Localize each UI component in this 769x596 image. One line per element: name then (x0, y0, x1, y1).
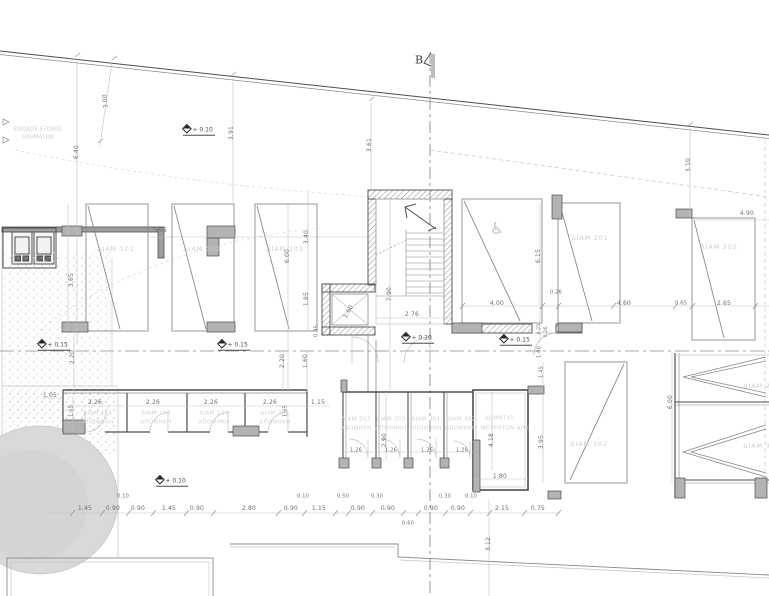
dimension-label: 0.50 (337, 495, 349, 500)
dimension-label: 2.26 (146, 400, 160, 406)
dimension-label: 6.40 (74, 145, 80, 159)
storage-room-label: ΑΠΟΘΗΚΗ (198, 420, 229, 426)
storage-room-label: ΑΠΟΘΗΚΗ (82, 420, 113, 426)
wheelchair-icon: ♿ (490, 221, 504, 237)
storage-room-label: ΑΠΟΘΗΚΗ (259, 420, 290, 426)
section-marker-flag (424, 53, 435, 78)
storage-room-label: ΜΕΤΡΗΤΩΝ ΑΗΚ (481, 426, 530, 432)
storage-room-label: ΔΙΑΜ 301 (411, 417, 440, 423)
dimension-label: 2.20 (70, 350, 76, 364)
dimension-label: 4.90 (740, 211, 754, 217)
storage-room-label: ΔΙΑΜ 102 (141, 411, 170, 417)
dimension-label: 3.61 (367, 138, 373, 152)
storage-room-label: ΑΠΟΘΗΚΗ (410, 426, 441, 432)
dimension-label: 0.90 (284, 506, 298, 512)
level-marker: + 0.15 (38, 340, 70, 351)
storage-room-label: ΑΠΟΘΗΚΗ (375, 426, 406, 432)
dimension-label: 0.30 (439, 495, 451, 500)
dimension-label: 1.45 (78, 506, 92, 512)
dimension-label: 0.90 (451, 506, 465, 512)
dimension-label: 2.65 (717, 301, 731, 307)
entrance-exit-note: ΕΙΣΟΔΟΣ-ΕΞΟΔΟΣ (13, 128, 62, 133)
storage-room-label: ΔΩΜΑΤΙΟ (485, 416, 514, 422)
dimension-label: 0.90 (381, 506, 395, 512)
storage-room-label: ΔΙΑΜ 103 (199, 411, 228, 417)
dimension-label: 0.90 (190, 506, 204, 512)
dimension-label: 1.26 (350, 449, 362, 454)
stair-direction-arrow (405, 204, 436, 231)
parking-space-label: ΔΙΑΜ 2 (743, 383, 769, 390)
dimension-label: 1.05 (43, 393, 57, 399)
dimension-label: 0.26 (545, 327, 550, 338)
dimension-label: 1.85 (304, 292, 310, 306)
storage-room-label: ΔΙΑΜ 201 (260, 411, 289, 417)
parking-space-label: ΔΙΑΜ 103 (266, 246, 303, 253)
dimension-label: 0.60 (402, 522, 414, 527)
dimension-label: 2.80 (242, 506, 256, 512)
entrance-arrow-icons (3, 119, 9, 143)
storage-room-label: ΑΠΟΘΗΚΗ (445, 426, 476, 432)
dimension-label: 3.95 (539, 435, 545, 449)
dimension-label: 2.20 (280, 354, 286, 368)
parking-space-label: ΔΙΑΜ 3 (743, 443, 769, 450)
dimension-label: 0.90 (131, 506, 145, 512)
dimension-label: 1.26 (385, 449, 397, 454)
parking-space-label: ΔΙΑΜ 302 (570, 441, 607, 448)
dimension-lines (40, 53, 769, 596)
dimension-label: 0.30 (371, 495, 383, 500)
dimension-label: 2.90 (382, 433, 388, 447)
parking-space-label: ΔΙΑΜ 102 (183, 246, 220, 253)
level-marker: + 0.15 (218, 340, 250, 351)
dimension-label: 0.10 (297, 495, 309, 500)
dimension-label: 0.75 (531, 506, 545, 512)
level-marker: + 0.20 (402, 333, 434, 344)
right-parking-bays (675, 353, 769, 498)
dimension-label: 1.60 (303, 354, 309, 368)
dimension-label: 4.18 (489, 433, 495, 447)
dimension-label: 1.15 (311, 400, 325, 406)
dimension-label: 0.10 (465, 495, 477, 500)
dimension-label: 2.26 (204, 400, 218, 406)
storage-room-label: ΑΠΟΘΗΚΗ (140, 420, 171, 426)
section-marker-label: B (415, 55, 423, 66)
dimension-label: 1.26 (421, 449, 433, 454)
door-swings-storage-narrow (349, 439, 470, 458)
dimension-label: 1.65 (70, 405, 75, 417)
storage-room-label: ΔΙΑΜ 203 (376, 417, 405, 423)
dimension-label: 7.90 (387, 287, 393, 301)
dimension-label: 1.00 (538, 346, 543, 358)
dimension-label: 6.15 (536, 249, 542, 263)
wall-pilasters (62, 195, 692, 333)
parking-space-label: ΔΙΑΜ 101 (97, 246, 134, 253)
dimension-label: 0.90 (424, 506, 438, 512)
floor-plan-canvas: B 6.403.003.913.613.105.953.656.003.401.… (0, 0, 769, 596)
dimension-label: 0.10 (117, 495, 129, 500)
dimension-label: 1.15 (312, 506, 326, 512)
dimension-label: 3.65 (69, 273, 75, 287)
level-marker: + 0.15 (500, 335, 532, 346)
dimension-label: 0.26 (550, 291, 562, 296)
dimension-label: 5.95 (153, 228, 167, 234)
dimension-label: 2.26 (88, 400, 102, 406)
storage-room-label: ΑΠΟΘΗΚΗ (340, 426, 371, 432)
parking-space-label: ΔΙΑΜ 201 (571, 235, 608, 242)
level-marker: + 0.10 (183, 125, 215, 136)
dimension-label: 2.26 (263, 400, 277, 406)
parking-space-label: ΔΙΑΜ 202 (700, 244, 737, 251)
dimension-label: 3.40 (304, 230, 310, 244)
storage-room-label: ΔΙΑΜ 101 (83, 411, 112, 417)
dimension-label: 1.45 (162, 506, 176, 512)
dimension-label: 4.60 (617, 301, 631, 307)
storage-row-narrow (339, 380, 561, 499)
dimension-label: 2.76 (405, 312, 419, 318)
dimension-label: 0.90 (351, 506, 365, 512)
meter-room (473, 386, 544, 492)
dimension-label: 1.80 (493, 474, 507, 480)
dimension-label: 0.90 (106, 506, 120, 512)
dimension-label: 2.15 (495, 506, 509, 512)
dimension-label: 4.00 (490, 301, 504, 307)
dimension-label: 3.10 (686, 158, 692, 172)
dimension-label: 0.35 (315, 325, 320, 337)
level-marker: + 0.10 (156, 476, 188, 487)
entrance-exit-note: ΟΧΗΜΑΤΩΝ (22, 136, 54, 141)
dimension-label: 1.26 (456, 449, 468, 454)
storage-room-label: ΔΙΑΜ 302 (446, 417, 475, 423)
dimension-label: 0.25 (538, 324, 543, 335)
storage-room-label: ΔΙΑΜ 202 (341, 417, 370, 423)
dimension-label: 3.91 (229, 126, 235, 140)
dimension-label: 3.12 (486, 537, 492, 551)
dimension-label: 6.00 (668, 395, 674, 409)
dimension-label: 1.45 (540, 366, 545, 378)
dimension-label: 0.65 (675, 302, 687, 307)
